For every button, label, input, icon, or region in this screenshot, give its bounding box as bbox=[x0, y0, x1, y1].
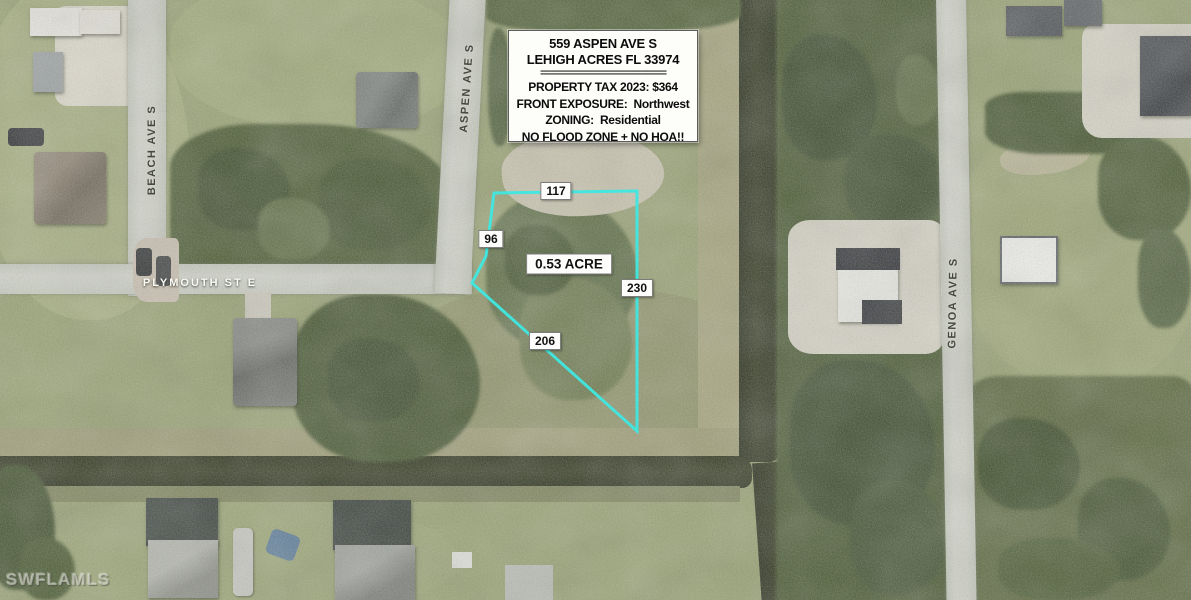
dimension-label-right: 230 bbox=[621, 279, 653, 297]
pool-cage-house1 bbox=[146, 498, 218, 546]
info-flood: NO FLOOD ZONE + NO HOA!! bbox=[509, 130, 697, 146]
vehicle-dark bbox=[8, 128, 44, 146]
pool-cage-house2 bbox=[333, 500, 411, 550]
white-building-topleft bbox=[30, 8, 82, 36]
construction-roof-dark-2 bbox=[862, 300, 902, 324]
street-label-plymouth-st: PLYMOUTH ST E bbox=[143, 277, 257, 289]
house-right-edge bbox=[1140, 36, 1191, 116]
construction-roof-dark-1 bbox=[836, 248, 900, 270]
white-house-genoa bbox=[1000, 236, 1058, 284]
aerial-photo: 559 ASPEN AVE S LEHIGH ACRES FL 33974 ==… bbox=[0, 0, 1191, 600]
tree-cluster bbox=[1098, 136, 1191, 240]
street-label-beach-ave: BEACH AVE S bbox=[146, 105, 158, 195]
grass-top-mid bbox=[170, 0, 470, 130]
tree-cluster bbox=[20, 538, 75, 600]
house-bottom-2 bbox=[335, 545, 415, 600]
info-city: LEHIGH ACRES FL 33974 bbox=[509, 52, 697, 68]
roof-topright-2 bbox=[1064, 0, 1102, 26]
lot-area-label: 0.53 ACRE bbox=[526, 254, 612, 275]
roof-topright-1 bbox=[1006, 6, 1062, 36]
tree-cluster bbox=[258, 198, 330, 260]
info-zoning: ZONING: Residential bbox=[509, 113, 697, 129]
canal-bank-left bbox=[698, 0, 742, 458]
dimension-label-diagonal: 206 bbox=[529, 332, 561, 350]
shed-topleft bbox=[33, 52, 63, 92]
house-mid-left bbox=[233, 318, 297, 406]
shed-bottom-mid bbox=[452, 552, 472, 568]
info-exposure: FRONT EXPOSURE: Northwest bbox=[509, 97, 697, 113]
house-aspen-top bbox=[356, 72, 418, 128]
info-address: 559 ASPEN AVE S bbox=[509, 36, 697, 52]
street-label-genoa-ave: GENOA AVE S bbox=[946, 257, 960, 348]
dimension-label-top: 117 bbox=[540, 182, 571, 200]
house-bottom-1 bbox=[148, 540, 218, 598]
dimension-label-left: 96 bbox=[478, 230, 503, 248]
info-tax: PROPERTY TAX 2023: $364 bbox=[509, 80, 697, 96]
tree-cluster bbox=[998, 538, 1120, 600]
vehicle-driveway-1 bbox=[136, 248, 152, 276]
info-divider: ========================== bbox=[509, 68, 697, 79]
white-building-topleft-2 bbox=[80, 10, 120, 34]
mls-watermark: SWFLAMLS bbox=[6, 570, 110, 590]
trailer-rv bbox=[233, 528, 253, 596]
house-brown-roof bbox=[34, 152, 106, 224]
structure-bottom-mid bbox=[505, 565, 553, 600]
tree-strip-top-mid bbox=[486, 0, 741, 32]
canal-vertical-water bbox=[739, 0, 778, 462]
property-info-box: 559 ASPEN AVE S LEHIGH ACRES FL 33974 ==… bbox=[508, 30, 698, 142]
